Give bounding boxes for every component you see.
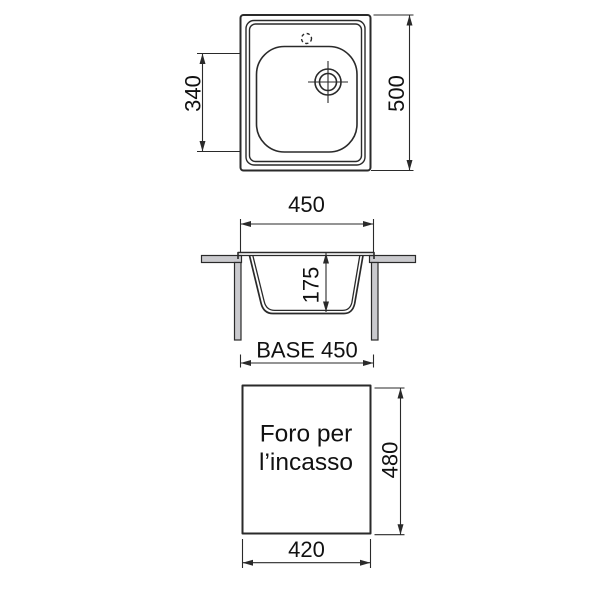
cutout-label-line1: Foro per [260, 421, 353, 448]
sink-outer-edge [241, 15, 371, 171]
dim-label-base-450: BASE 450 [256, 338, 358, 363]
sink-technical-drawing: 340 500 450 175 B [0, 0, 600, 600]
cutout-view: Foro per l’incasso 480 420 [243, 386, 405, 569]
sink-rim-inner [250, 24, 362, 162]
dim-label-480: 480 [378, 442, 403, 479]
section-view: 450 175 BASE 450 [202, 192, 416, 368]
dimension-500: 500 [371, 15, 414, 171]
dim-label-340: 340 [181, 75, 206, 112]
dimension-175: 175 [299, 253, 326, 312]
cabinet-side-left [235, 263, 242, 341]
dim-label-500: 500 [384, 75, 409, 112]
drain [308, 61, 348, 103]
dim-label-450: 450 [288, 192, 325, 217]
dimension-base-450: BASE 450 [241, 338, 374, 368]
dimension-420: 420 [243, 537, 371, 568]
drawing-canvas: 340 500 450 175 B [0, 0, 600, 600]
countertop-right [370, 256, 416, 263]
countertop-left [202, 256, 242, 263]
cabinet-side-right [372, 263, 379, 341]
dimension-340: 340 [181, 54, 242, 152]
tap-hole [302, 34, 312, 44]
sink-basin [257, 47, 358, 153]
dimension-480: 480 [375, 388, 405, 535]
cutout-label-line2: l’incasso [259, 449, 353, 476]
dimension-450: 450 [241, 192, 374, 252]
top-view: 340 500 [181, 15, 414, 171]
dim-label-420: 420 [288, 537, 325, 562]
dim-label-175: 175 [299, 267, 324, 304]
